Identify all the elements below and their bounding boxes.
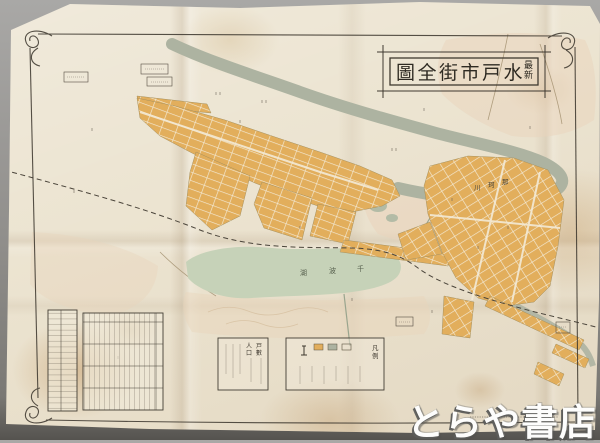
legend-swatch-water: [328, 344, 337, 350]
map-paper: 川 珂 那 湖 波 千: [0, 0, 600, 440]
river-label-char: 那: [502, 178, 509, 186]
legend-box: 凡 例: [286, 338, 384, 390]
city-block-polygon: [485, 296, 584, 350]
lake-label-char: 千: [357, 264, 364, 273]
legend-swatch-town: [314, 344, 323, 350]
city-block-polygon: [442, 296, 474, 338]
map-title-text: 圖全街市戸水: [396, 62, 525, 84]
legend-title-char: 凡: [372, 344, 379, 352]
river-label-char: 珂: [488, 181, 495, 189]
map-title-prefix-char: 新: [524, 69, 533, 80]
label-box: [147, 77, 172, 86]
statistics-box: 戸 數 人 口: [218, 338, 268, 390]
stat-char: 口: [246, 350, 252, 357]
frame-left-line: [30, 48, 38, 398]
map-title-prefix-char: 最: [524, 60, 533, 70]
landmark-list-table: [48, 310, 77, 411]
distance-table: [83, 313, 163, 410]
map-photo-backdrop: 川 珂 那 湖 波 千: [0, 0, 600, 440]
stat-char: 戸: [256, 343, 262, 350]
bookstore-watermark: とらや書店: [407, 404, 597, 441]
stat-char: 數: [256, 349, 262, 357]
city-block-polygon: [534, 362, 564, 386]
legend-title-char: 例: [372, 351, 379, 360]
river-label-char: 川: [474, 185, 481, 192]
corner-ornament-top-left-icon: [25, 31, 52, 66]
stat-char: 人: [246, 343, 252, 350]
lake-label-char: 湖: [300, 268, 307, 277]
lake-label-char: 波: [329, 266, 336, 275]
map-drawing: 川 珂 那 湖 波 千: [0, 0, 600, 440]
